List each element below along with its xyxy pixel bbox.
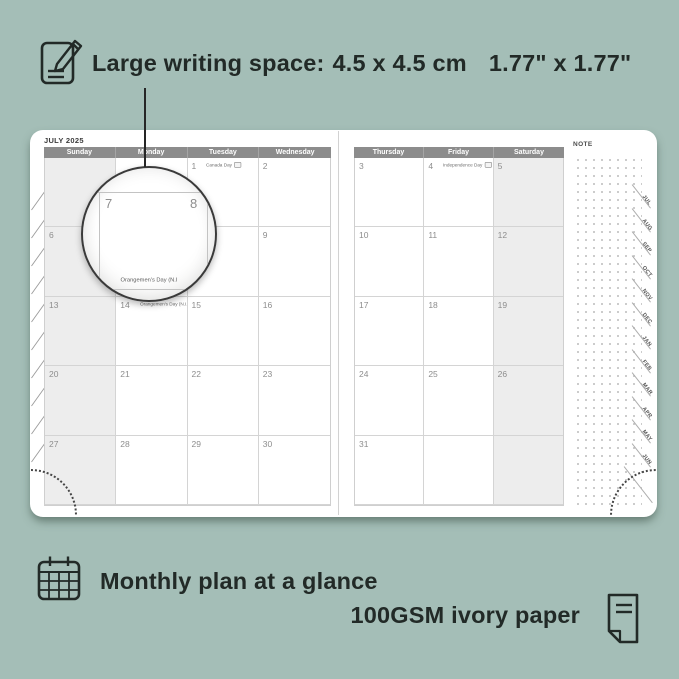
calendar-day-cell: 28 [116,436,187,505]
note-label: NOTE [573,141,593,148]
date-number: 27 [45,436,58,449]
corner-perforation-left [31,469,87,515]
date-number: 22 [188,366,201,379]
date-number: 4 [424,158,433,171]
calendar-day-cell: 14Orangemen's Day (N.I.) [116,297,187,366]
date-number: 10 [355,227,368,240]
date-number: 3 [355,158,364,171]
month-tab-apr: APR [641,406,653,419]
date-number: 11 [424,227,437,240]
month-tab-aug: AUG [641,218,653,231]
calendar-day-cell: 2 [259,158,330,227]
calendar-day-cell: 3 [355,158,424,227]
calendar-day-cell: 23 [259,366,330,435]
date-number: 28 [116,436,129,449]
month-tab-may: MAY [641,429,653,442]
day-header: Sunday [44,147,116,158]
date-number: 19 [494,297,507,310]
date-number: 23 [259,366,272,379]
calendar-day-cell: 13 [45,297,116,366]
date-number: 21 [116,366,129,379]
corner-perforation-right [592,469,656,515]
date-number [45,158,49,161]
calendar-day-cell: 20 [45,366,116,435]
magnified-date-8: 8 [190,196,197,211]
day-header: Saturday [494,147,564,158]
date-number: 13 [45,297,58,310]
weekday-header-row: ThursdayFridaySaturday [354,147,564,158]
date-number: 17 [355,297,368,310]
date-number: 9 [259,227,268,240]
magnified-grid-line [99,192,100,300]
date-number: 1 [188,158,197,171]
magnified-grid-line [83,289,215,290]
day-header: Friday [424,147,494,158]
weekday-header-row: SundayMondayTuesdayWednesday [44,147,331,158]
date-number: 26 [494,366,507,379]
date-number: 15 [188,297,201,310]
date-number: 18 [424,297,437,310]
month-tabs: JULAUGSEPOCTNOVDECJANFEBMARAPRMAYJUN [636,184,662,494]
date-number: 20 [45,366,58,379]
monthly-calendar-icon [36,555,82,603]
product-image: Large writing space:4.5 x 4.5 cm1.77" x … [0,0,679,679]
date-number: 16 [259,297,272,310]
writing-space-label: Large writing space: [92,50,325,76]
date-number: 30 [259,436,272,449]
calendar-day-cell: 21 [116,366,187,435]
month-tab-nov: NOV [641,288,653,301]
date-number: 2 [259,158,268,171]
calendar-day-cell: 12 [494,227,563,296]
calendar-day-cell: 11 [424,227,493,296]
magnified-date-7: 7 [105,196,112,211]
holiday-label: Canada Day [206,162,241,168]
calendar-day-cell: 16 [259,297,330,366]
magnified-grid-line [207,192,208,300]
calendar-day-cell: 30 [259,436,330,505]
calendar-day-cell: 29 [188,436,259,505]
writing-space-imperial: 1.77" x 1.77" [489,50,632,76]
month-tab-jun: JUN [641,453,652,465]
calendar-day-cell: 4Independence Day [424,158,493,227]
month-tab-oct: OCT [641,265,653,278]
date-number [494,436,498,439]
calendar-day-cell: 24 [355,366,424,435]
calendar-day-cell: 10 [355,227,424,296]
month-tab-mar: MAR [641,382,653,396]
date-number [116,158,120,161]
day-header: Wednesday [259,147,331,158]
date-number: 31 [355,436,368,449]
magnifier-circle: 7 8 Orangemen's Day (N.I [81,166,217,302]
calendar-grid: 34Independence Day510111217181924252631 [354,158,564,506]
calendar-day-cell [424,436,493,505]
calendar-day-cell [494,436,563,505]
flag-badge-icon [485,162,492,168]
calendar-day-cell: 22 [188,366,259,435]
month-title: JULY 2025 [44,136,84,145]
feature-writing-space: Large writing space:4.5 x 4.5 cm1.77" x … [92,50,631,77]
date-number: 24 [355,366,368,379]
month-tab-sep: SEP [641,241,652,253]
day-header: Tuesday [188,147,260,158]
magnified-grid-line [83,192,215,193]
date-number: 25 [424,366,437,379]
writing-space-metric: 4.5 x 4.5 cm [333,50,467,76]
day-header: Thursday [354,147,424,158]
page-spine [338,131,339,515]
calendar-day-cell: 26 [494,366,563,435]
feature-paper: 100GSM ivory paper [350,602,580,629]
month-tab-jan: JAN [641,335,652,347]
calendar-day-cell: 15 [188,297,259,366]
paper-sheet-icon [601,592,643,646]
month-tab-dec: DEC [641,312,653,325]
date-number: 12 [494,227,507,240]
magnified-holiday-caption: Orangemen's Day (N.I [95,278,203,284]
pencil-note-icon [37,33,87,87]
date-number [424,436,428,439]
calendar-day-cell: 9 [259,227,330,296]
month-tab-jul: JUL [641,194,652,206]
feature-monthly-plan: Monthly plan at a glance [100,568,378,595]
calendar-day-cell: 17 [355,297,424,366]
date-number: 6 [45,227,54,240]
calendar-day-cell: 5 [494,158,563,227]
holiday-label: Independence Day [443,162,492,168]
callout-line [144,88,146,167]
calendar-day-cell: 25 [424,366,493,435]
date-number: 5 [494,158,503,171]
calendar-right-page: ThursdayFridaySaturday 34Independence Da… [354,147,564,506]
calendar-day-cell: 31 [355,436,424,505]
calendar-day-cell: 19 [494,297,563,366]
date-number: 29 [188,436,201,449]
month-tab-feb: FEB [641,359,652,371]
flag-badge-icon [234,162,241,168]
calendar-day-cell: 18 [424,297,493,366]
day-header: Monday [116,147,188,158]
